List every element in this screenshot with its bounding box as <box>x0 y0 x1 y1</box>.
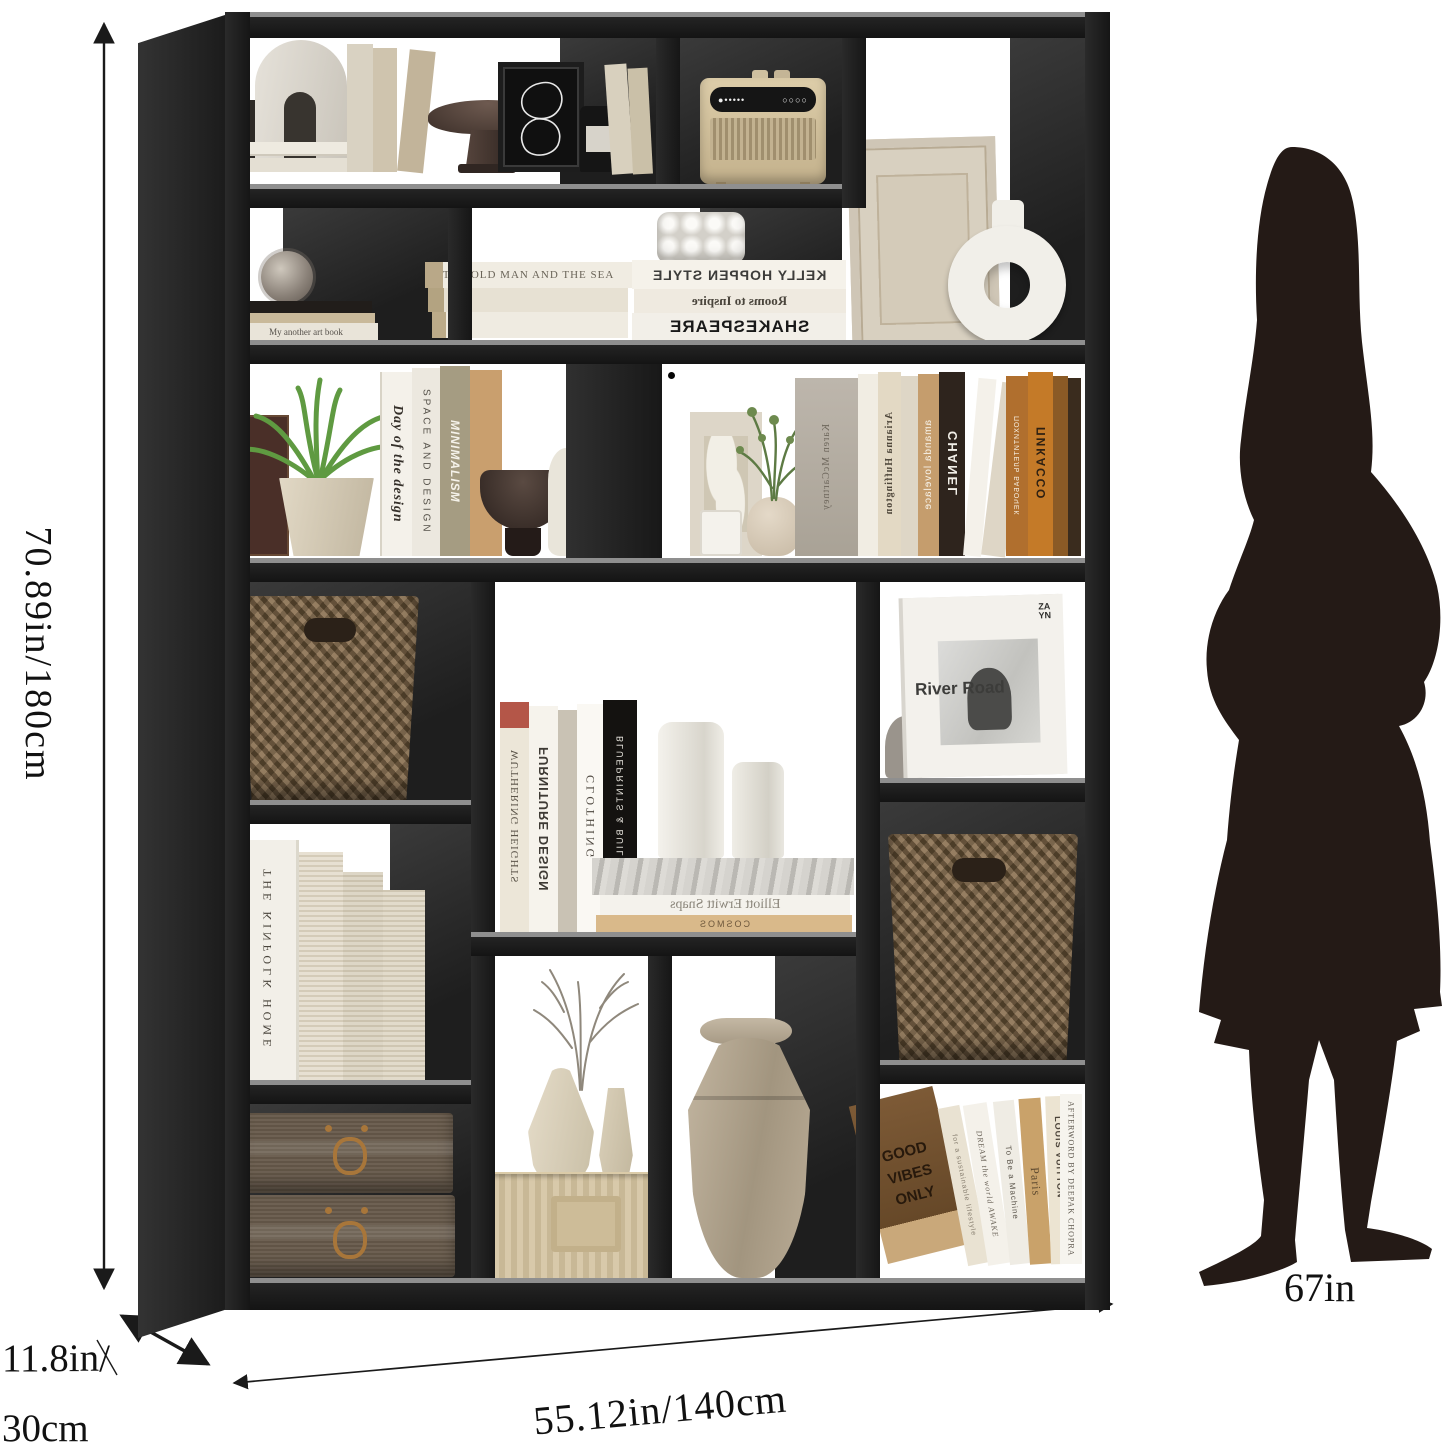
book-title: My another art book <box>269 327 343 337</box>
depth-dimension-label-line1: 11.8in/ <box>2 1336 110 1381</box>
book-river-road: River Road ZAYN <box>903 594 1068 778</box>
book-title: Paris <box>1027 1166 1044 1196</box>
book-arianna-huffington: Arianna Huffington <box>878 372 901 556</box>
shelf-board <box>250 184 866 208</box>
shelf-left-frame <box>225 12 250 1310</box>
height-dimension-label: 70.89in/180cm <box>16 480 60 828</box>
book-spine <box>470 370 502 556</box>
donut-vase <box>948 226 1066 344</box>
storage-box <box>237 1195 455 1277</box>
book-title: Rooms to Inspire <box>692 293 787 309</box>
book-title: GOOD VIBES ONLY <box>875 1135 946 1214</box>
sprig-vase <box>747 497 801 556</box>
book-title: SPACE AND DESIGN <box>421 389 432 535</box>
shelf-top-board <box>225 12 1110 38</box>
book-afterword: AFTERWORD BY DEEPAK CHOPRA <box>1060 1094 1082 1264</box>
book-day-of-design: Day of the design <box>380 372 412 556</box>
shelf-board <box>471 932 880 956</box>
book-picasso: ПИКАССО <box>1028 372 1053 556</box>
basket-handle-hole <box>304 618 356 642</box>
book-minimalism: MINIMALISM <box>440 366 470 556</box>
radio-control-panel: ●••••• ○○○○ <box>710 87 816 112</box>
book-shakespeare: SHAKESPEARE <box>632 313 846 340</box>
book-chanel: CHANEL <box>939 372 965 556</box>
book-amanda-lovelace: amanda lovelace <box>918 374 939 556</box>
book-furniture-design: FURNITURE DESIGN <box>529 706 558 932</box>
shelf-side-panel <box>138 14 228 1338</box>
shelf-divider <box>856 582 880 1278</box>
vintage-radio: ●••••• ○○○○ <box>700 78 826 184</box>
book-stack-horizontal <box>240 301 372 313</box>
book-spine <box>1053 376 1068 556</box>
shelf-board <box>880 778 1085 802</box>
book-title: Day of the design <box>389 405 405 523</box>
book-title: Arianna Huffington <box>884 412 895 515</box>
book-spine <box>858 374 878 556</box>
book-title: AFTERWORD BY DEEPAK CHOPRA <box>1067 1101 1076 1256</box>
book-title: Elliott Erwitt Snaps <box>670 897 780 913</box>
line-art-squiggle-icon <box>506 69 576 165</box>
storage-box <box>239 1113 453 1193</box>
shelf-divider-wide <box>566 364 662 558</box>
shelf-pin-hole <box>668 372 675 379</box>
shelf-board <box>250 340 1085 364</box>
book-title: SHAKESPEARE <box>669 317 809 337</box>
book-pokhititel: ПОХИТИТЕЛЬ БАБОЧЕК <box>1006 376 1028 556</box>
book-my-art-book: My another art book <box>234 323 378 340</box>
book-rooms-to-inspire: Rooms to Inspire <box>634 289 846 313</box>
book-spine <box>901 376 918 556</box>
book-kelly-hoppen: KELLY HOPPEN STYLE <box>632 260 846 289</box>
book-title: To Be a Machine <box>1004 1145 1021 1220</box>
shelf-divider <box>648 956 672 1278</box>
book-pages <box>383 890 425 1080</box>
person-height-label: 67in <box>1284 1264 1355 1311</box>
width-arrow <box>234 1304 1112 1383</box>
fabric-box-label-holder <box>551 1196 621 1252</box>
depth-dimension-label-line2: 30cm <box>2 1406 89 1447</box>
shelf-board <box>250 1080 471 1104</box>
basket-handle-hole <box>952 858 1006 882</box>
book-title: Karen McCartney <box>821 424 832 511</box>
book-title: amanda lovelace <box>923 420 934 511</box>
shelf-divider <box>656 38 680 184</box>
book-stack-horizontal <box>237 313 375 323</box>
book-karen-mccartney: Karen McCartney <box>795 378 858 556</box>
book-title: FURNITURE DESIGN <box>536 747 551 892</box>
shelf-bottom-board <box>225 1278 1110 1310</box>
spiky-ball-decor <box>261 251 313 303</box>
book-stack-marble <box>592 858 854 895</box>
book-title: CLOTHING <box>583 775 598 860</box>
shelf-board <box>880 1060 1085 1084</box>
zayn-logo: ZAYN <box>1038 602 1051 620</box>
book-title: CHANEL <box>945 431 960 497</box>
framed-line-art <box>498 62 584 172</box>
book-title: COSMOS <box>698 919 750 929</box>
dry-branches-icon <box>520 952 650 1092</box>
book-wuthering: WUTHERING HEIGHTS <box>500 702 529 932</box>
book-title: THE KINFOLK HOME <box>260 869 275 1050</box>
shelf-divider <box>842 38 866 208</box>
book-title: ПИКАССО <box>1034 427 1048 500</box>
product-dimension-image: 70.89in/180cm 11.8in/ 30cm 55.12in/140cm… <box>0 0 1445 1447</box>
book-spine <box>558 710 577 932</box>
book-pages <box>299 852 343 1080</box>
shelf-divider <box>448 208 472 340</box>
shelf-right-frame <box>1085 12 1110 1310</box>
book-title: MINIMALISM <box>448 420 462 503</box>
person-silhouette <box>1199 147 1442 1286</box>
cylinder-vase-small <box>732 762 784 858</box>
book-title: WUTHERING HEIGHTS <box>509 750 521 883</box>
dark-bowl-foot <box>505 528 541 556</box>
book-spine <box>373 48 397 172</box>
fabric-storage-box <box>493 1172 663 1278</box>
bubble-candle <box>657 212 745 264</box>
book-title: KELLY HOPPEN STYLE <box>652 267 826 283</box>
cylinder-vase-large <box>658 722 724 858</box>
shelf-board <box>250 800 471 824</box>
book-title: River Road <box>915 677 1005 699</box>
book-spine <box>347 44 373 172</box>
shelf-board <box>250 558 1085 582</box>
shelf-divider <box>471 956 495 1278</box>
fabric-box-lid <box>493 1172 663 1174</box>
book-pages <box>343 872 383 1080</box>
large-urn-vase <box>688 1038 810 1278</box>
book-space-and-design: SPACE AND DESIGN <box>412 368 440 556</box>
book-cosmos: COSMOS <box>596 915 852 932</box>
book-title: ПОХИТИТЕЛЬ БАБОЧЕК <box>1014 416 1021 516</box>
radio-speaker-mesh <box>710 118 816 160</box>
shelf-divider <box>471 582 495 932</box>
book-elliott-erwitt: Elliott Erwitt Snaps <box>600 895 850 915</box>
tealight-candle <box>700 510 742 556</box>
book-spine <box>1068 378 1081 556</box>
